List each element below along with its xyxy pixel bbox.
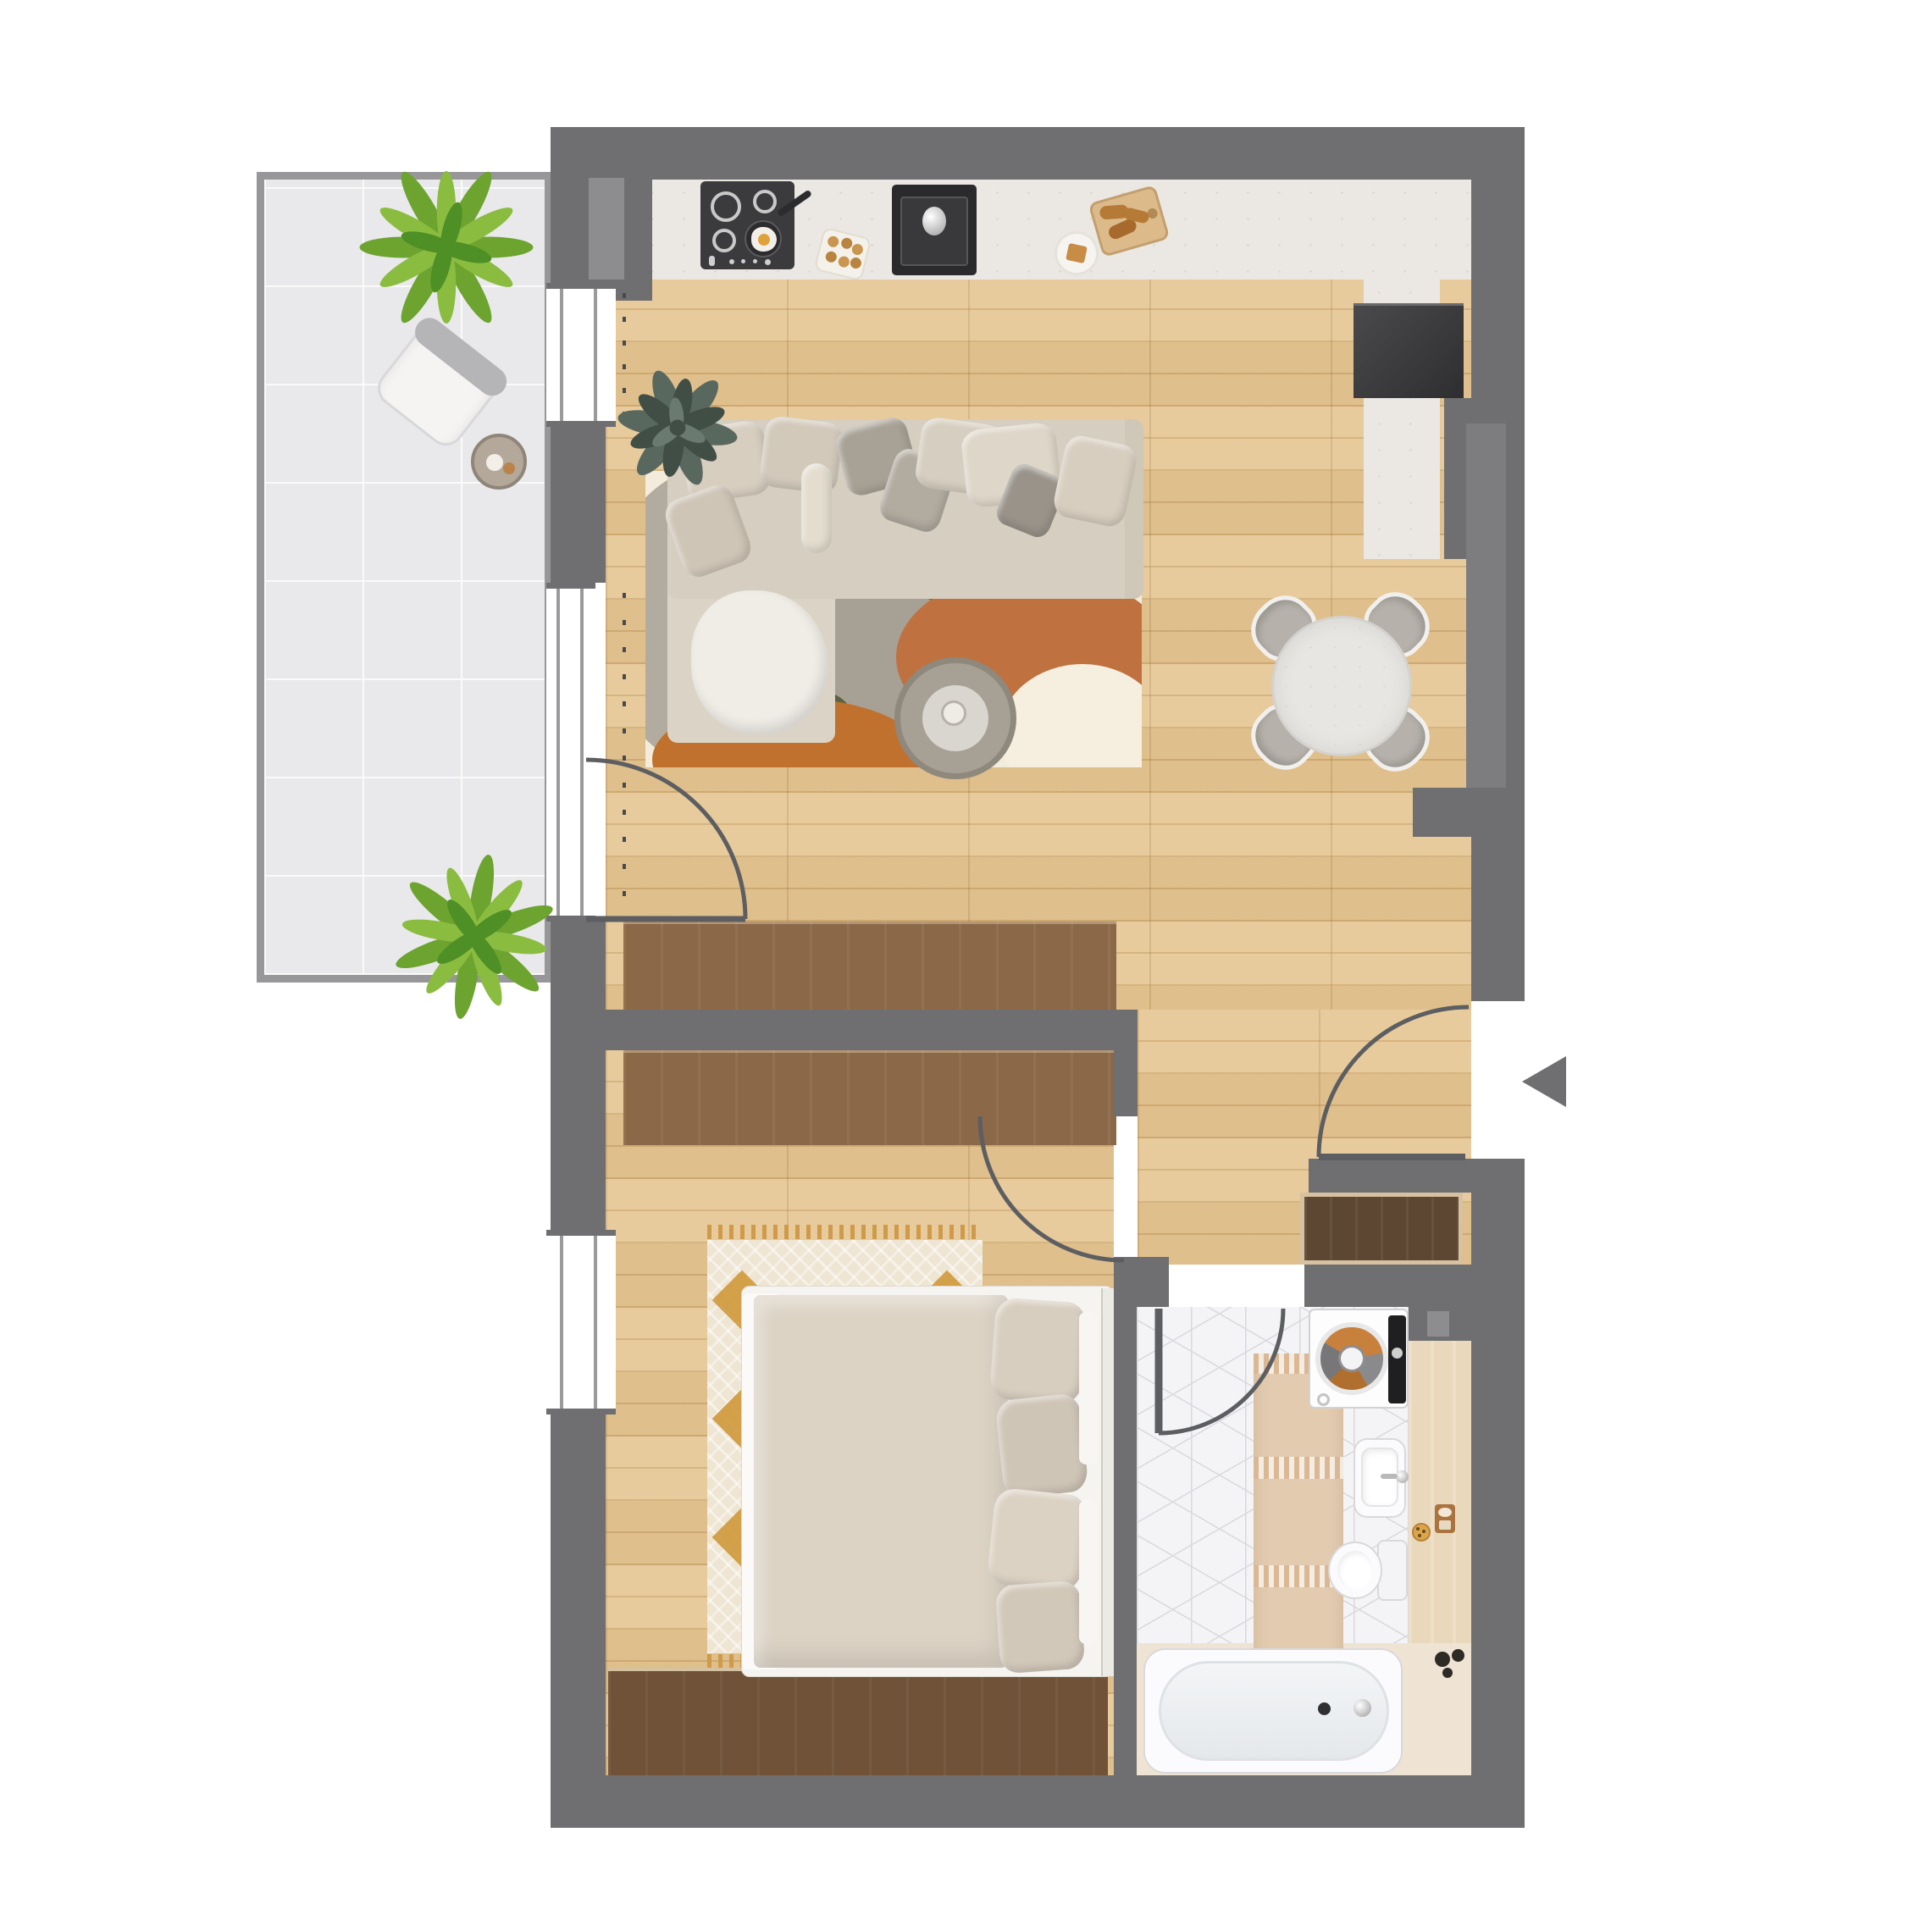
bathroom-door-swing: [1159, 1309, 1283, 1433]
balcony-plant: [360, 167, 534, 328]
balcony-plant: [361, 824, 588, 1049]
balcony-door-swing: [586, 760, 745, 919]
symbols-overlay: [0, 0, 1932, 1932]
entry-door-swing: [1319, 1007, 1469, 1157]
floor-plan: [0, 0, 1932, 1932]
door-swings: [586, 760, 1469, 1433]
bedroom-door-swing: [980, 1116, 1124, 1260]
living-room-plant: [616, 367, 739, 489]
